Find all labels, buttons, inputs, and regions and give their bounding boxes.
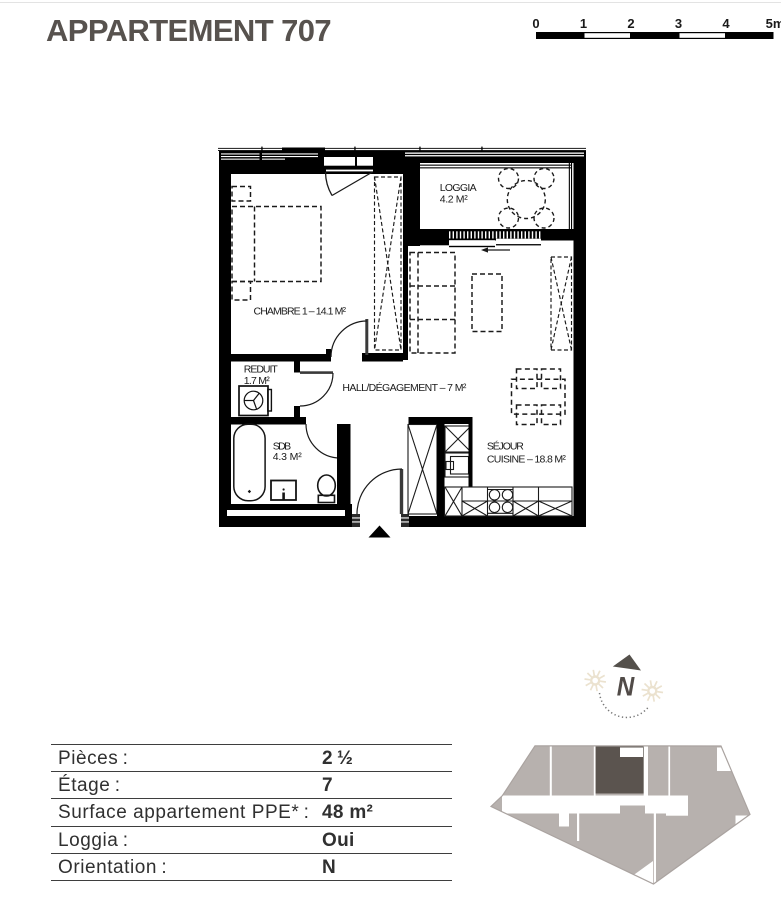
svg-text:3: 3 [675,16,682,31]
svg-text:REDUIT: REDUIT [244,364,279,376]
svg-text:4: 4 [722,16,730,31]
svg-text:2: 2 [627,16,634,31]
svg-text:SÉJOUR: SÉJOUR [487,439,524,452]
svg-text:N: N [617,671,635,701]
svg-text:4.2 M²: 4.2 M² [440,194,469,206]
svg-text:5m: 5m [766,16,781,31]
svg-text:1.7 M²: 1.7 M² [244,375,270,387]
svg-text:HALL/DÉGAGEMENT – 7 M²: HALL/DÉGAGEMENT – 7 M² [342,381,467,394]
svg-text:4.3 M²: 4.3 M² [273,451,303,463]
svg-text:0: 0 [532,16,539,31]
svg-text:LOGGIA: LOGGIA [440,182,477,194]
svg-text:CHAMBRE 1 – 14.1 M²: CHAMBRE 1 – 14.1 M² [254,305,347,317]
svg-text:CUISINE – 18.8 M²: CUISINE – 18.8 M² [487,454,567,466]
svg-text:1: 1 [580,16,587,31]
